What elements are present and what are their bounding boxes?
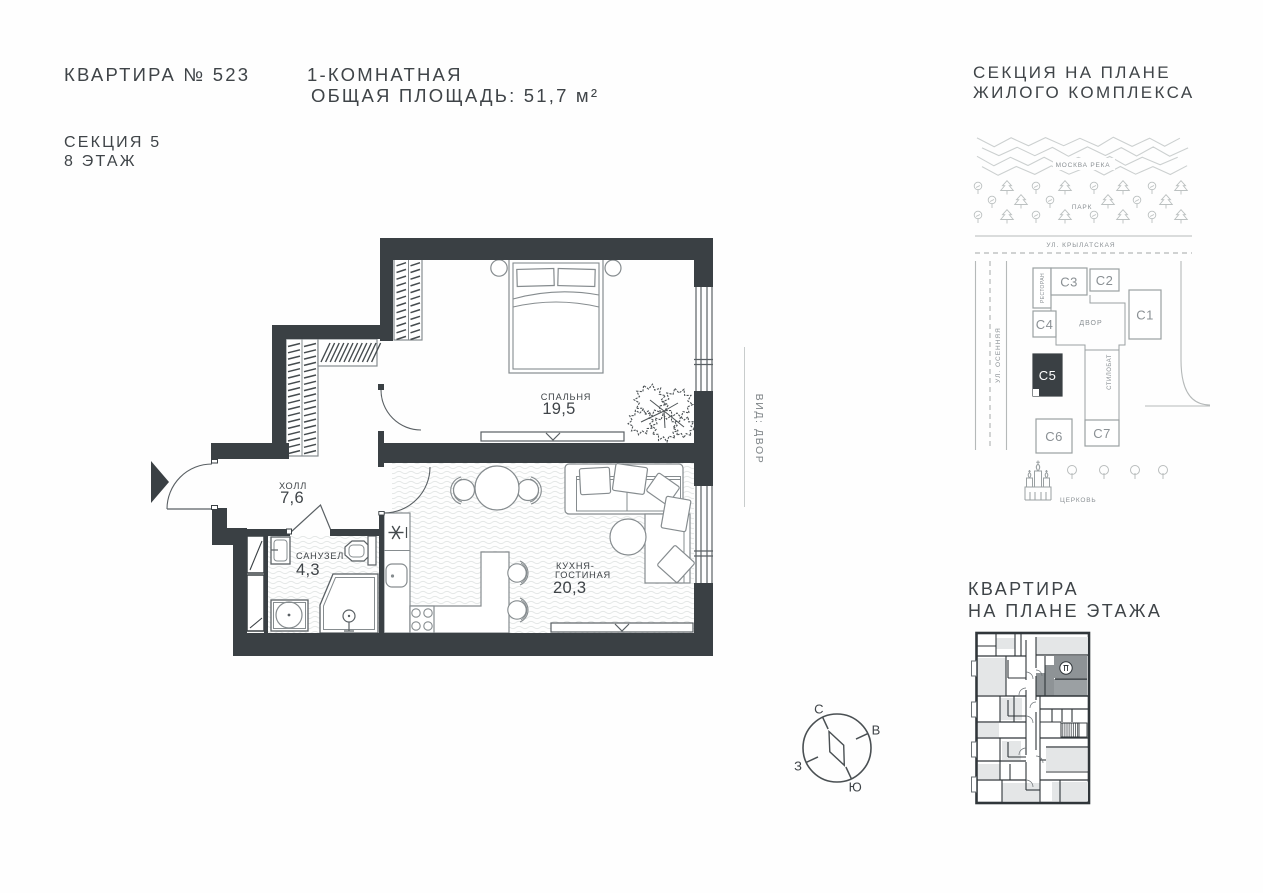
svg-text:С6: С6	[1045, 429, 1063, 444]
svg-text:1-КОМНАТНАЯ: 1-КОМНАТНАЯ	[307, 64, 463, 85]
svg-text:Ю: Ю	[849, 780, 862, 795]
svg-text:19,5: 19,5	[542, 400, 575, 418]
svg-text:РЕСТОРАН: РЕСТОРАН	[1040, 273, 1046, 303]
svg-text:СТИЛОБАТ: СТИЛОБАТ	[1107, 354, 1113, 390]
svg-text:ЦЕРКОВЬ: ЦЕРКОВЬ	[1060, 497, 1096, 504]
svg-text:ДВОР: ДВОР	[1079, 320, 1102, 327]
svg-text:ВИД: ДВОР: ВИД: ДВОР	[753, 394, 765, 465]
svg-text:З: З	[794, 759, 802, 774]
svg-text:СЕКЦИЯ НА ПЛАНЕ: СЕКЦИЯ НА ПЛАНЕ	[973, 63, 1171, 82]
svg-text:С4: С4	[1036, 317, 1054, 332]
svg-text:С1: С1	[1136, 308, 1154, 323]
svg-text:УЛ. КРЫЛАТСКАЯ: УЛ. КРЫЛАТСКАЯ	[1046, 242, 1115, 249]
svg-text:С5: С5	[1039, 368, 1057, 383]
svg-text:САНУЗЕЛ: САНУЗЕЛ	[296, 551, 344, 561]
svg-text:20,3: 20,3	[553, 579, 586, 597]
svg-text:8 ЭТАЖ: 8 ЭТАЖ	[64, 153, 137, 170]
svg-text:С7: С7	[1093, 426, 1111, 441]
svg-text:КВАРТИРА № 523: КВАРТИРА № 523	[64, 64, 250, 85]
svg-text:С3: С3	[1060, 275, 1078, 290]
svg-text:С2: С2	[1096, 273, 1114, 288]
svg-text:В: В	[872, 722, 881, 737]
svg-text:ОБЩАЯ ПЛОЩАДЬ: 51,7 м²: ОБЩАЯ ПЛОЩАДЬ: 51,7 м²	[311, 85, 599, 106]
svg-text:ЖИЛОГО КОМПЛЕКСА: ЖИЛОГО КОМПЛЕКСА	[973, 83, 1195, 102]
svg-text:МОСКВА РЕКА: МОСКВА РЕКА	[1056, 162, 1111, 169]
svg-text:7,6: 7,6	[280, 489, 304, 507]
svg-text:НА ПЛАНЕ ЭТАЖА: НА ПЛАНЕ ЭТАЖА	[968, 601, 1162, 621]
svg-text:4,3: 4,3	[296, 561, 320, 579]
svg-text:СЕКЦИЯ 5: СЕКЦИЯ 5	[64, 134, 161, 151]
svg-text:УЛ. ОСЕННЯЯ: УЛ. ОСЕННЯЯ	[995, 327, 1002, 383]
svg-text:ПАРК: ПАРК	[1072, 204, 1092, 211]
svg-text:С: С	[814, 702, 823, 717]
svg-text:КВАРТИРА: КВАРТИРА	[968, 579, 1079, 599]
